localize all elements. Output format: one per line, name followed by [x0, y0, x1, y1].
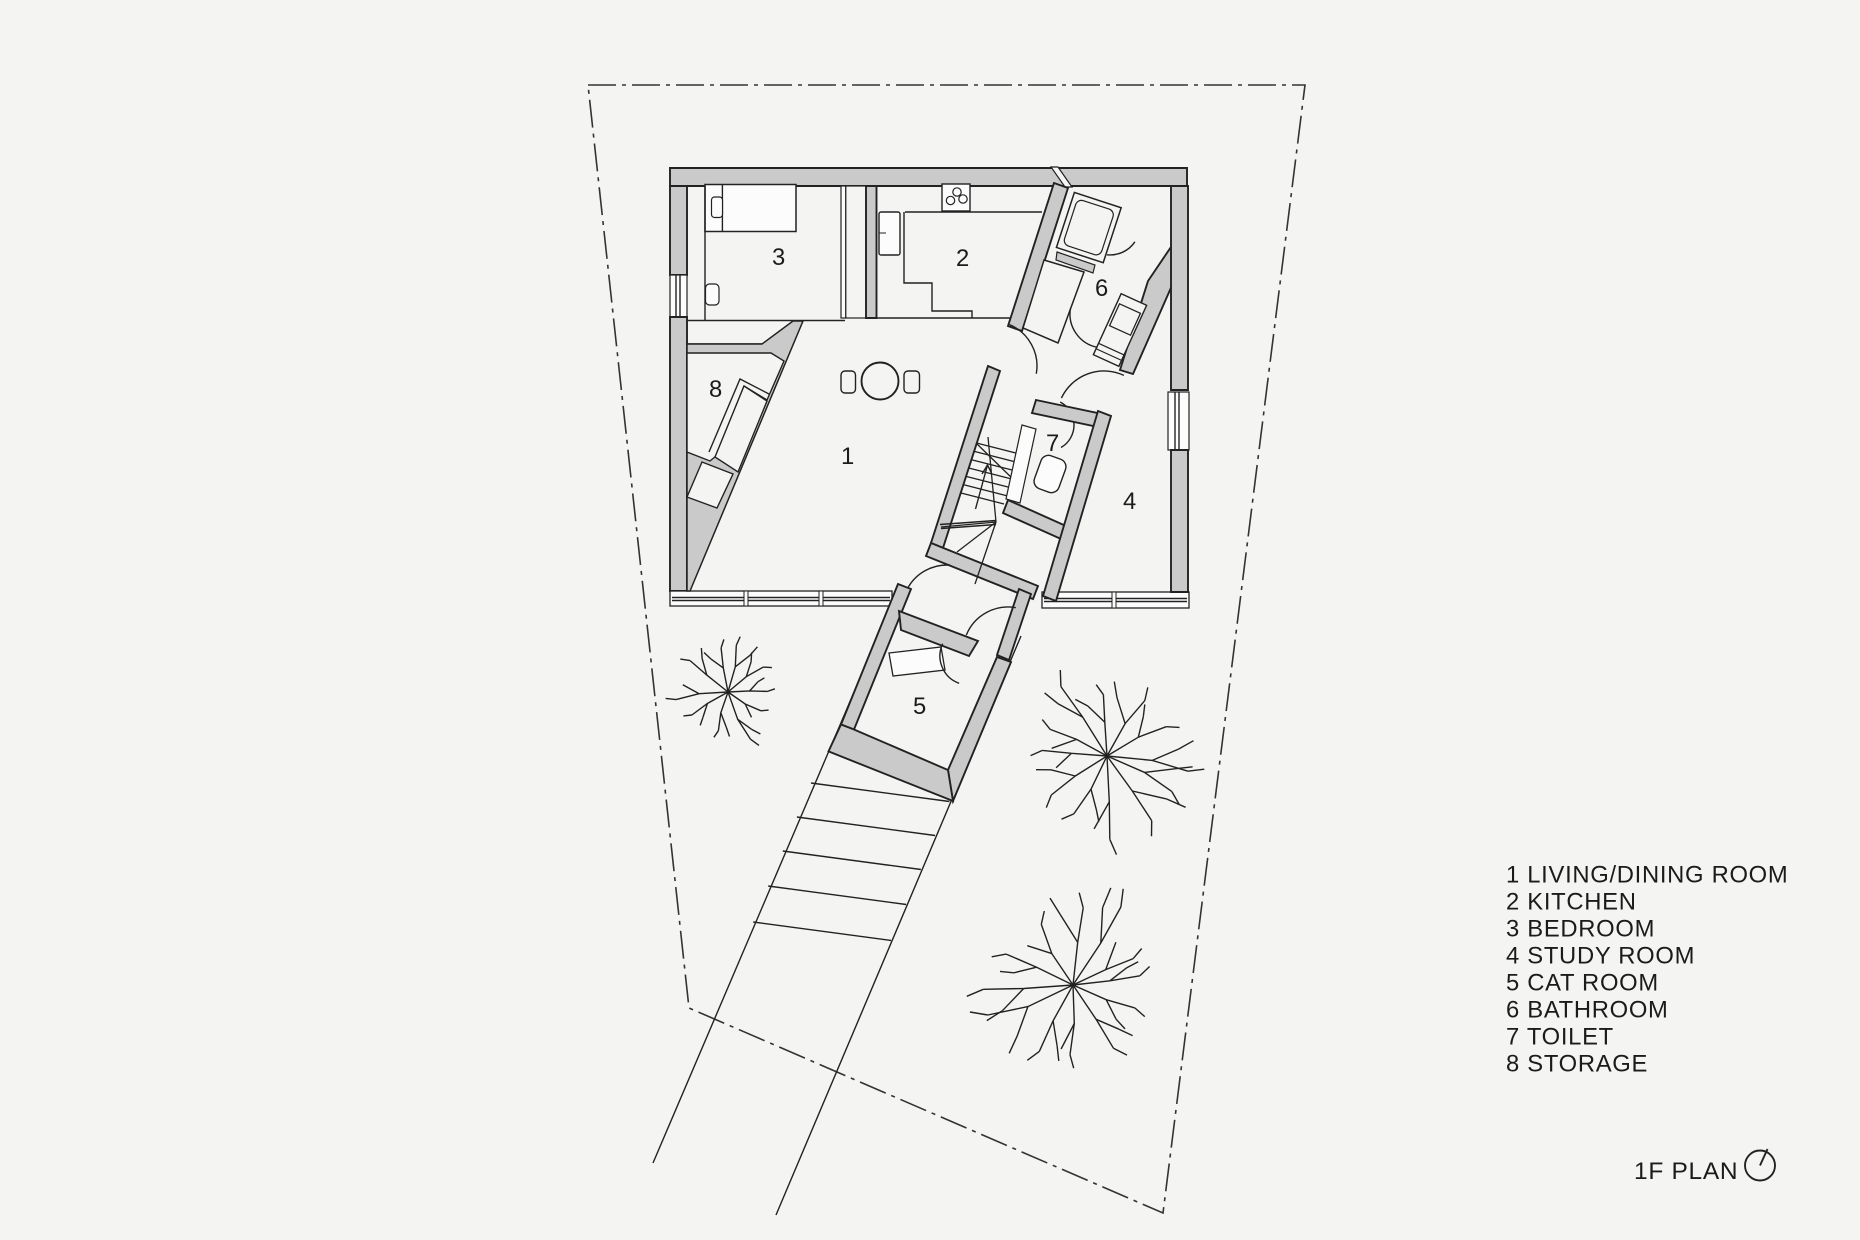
- svg-text:1: 1: [841, 443, 855, 470]
- svg-text:2: 2: [956, 245, 970, 272]
- svg-text:6: 6: [1095, 275, 1109, 302]
- svg-text:7 TOILET: 7 TOILET: [1506, 1024, 1614, 1051]
- svg-text:4 STUDY ROOM: 4 STUDY ROOM: [1506, 943, 1695, 970]
- svg-text:5: 5: [913, 693, 927, 720]
- svg-text:8: 8: [709, 376, 723, 403]
- svg-text:2 KITCHEN: 2 KITCHEN: [1506, 889, 1637, 916]
- svg-text:5 CAT ROOM: 5 CAT ROOM: [1506, 970, 1659, 997]
- svg-text:4: 4: [1123, 488, 1137, 515]
- svg-text:7: 7: [1046, 430, 1060, 457]
- svg-text:1F PLAN: 1F PLAN: [1634, 1158, 1738, 1185]
- svg-text:6 BATHROOM: 6 BATHROOM: [1506, 997, 1669, 1024]
- svg-text:3: 3: [772, 244, 786, 271]
- svg-text:1 LIVING/DINING ROOM: 1 LIVING/DINING ROOM: [1506, 862, 1788, 889]
- svg-text:3 BEDROOM: 3 BEDROOM: [1506, 916, 1655, 943]
- svg-text:8 STORAGE: 8 STORAGE: [1506, 1051, 1648, 1078]
